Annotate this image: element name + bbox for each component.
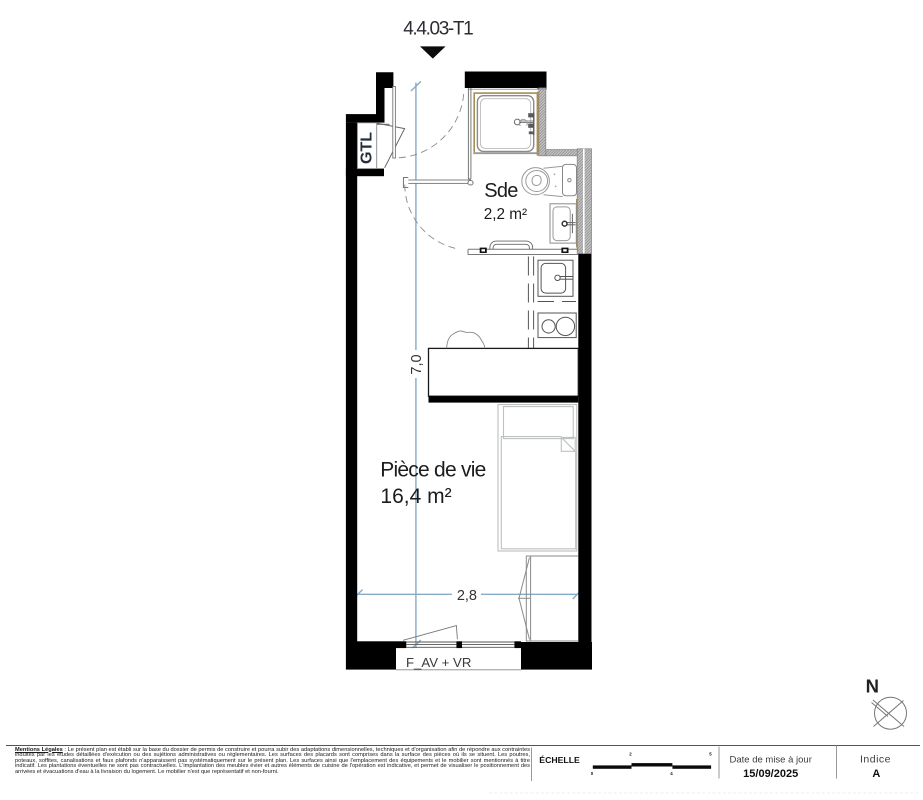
svg-text:N: N xyxy=(866,676,879,697)
svg-text:15/09/2025: 15/09/2025 xyxy=(743,768,798,780)
svg-text:Pièce de vie: Pièce de vie xyxy=(380,458,485,481)
svg-text:0: 0 xyxy=(591,771,594,776)
svg-text:2: 2 xyxy=(629,751,632,756)
svg-text:4.4.03-T1: 4.4.03-T1 xyxy=(403,18,473,39)
svg-text:5: 5 xyxy=(709,751,712,756)
svg-text:F_AV + VR: F_AV + VR xyxy=(406,655,471,670)
svg-text:4: 4 xyxy=(670,771,673,776)
svg-text:Indice: Indice xyxy=(860,754,891,766)
svg-text:Sde: Sde xyxy=(484,180,518,202)
svg-text:16,4 m²: 16,4 m² xyxy=(380,485,451,508)
svg-text:GTL: GTL xyxy=(358,132,375,164)
svg-text:2,8: 2,8 xyxy=(457,588,477,604)
svg-text:Date de mise à jour: Date de mise à jour xyxy=(730,755,812,766)
svg-text:A: A xyxy=(872,768,880,780)
svg-text:2,2 m²: 2,2 m² xyxy=(484,206,527,223)
svg-text:7,0: 7,0 xyxy=(409,354,425,374)
svg-text:ÉCHELLE: ÉCHELLE xyxy=(539,755,580,765)
